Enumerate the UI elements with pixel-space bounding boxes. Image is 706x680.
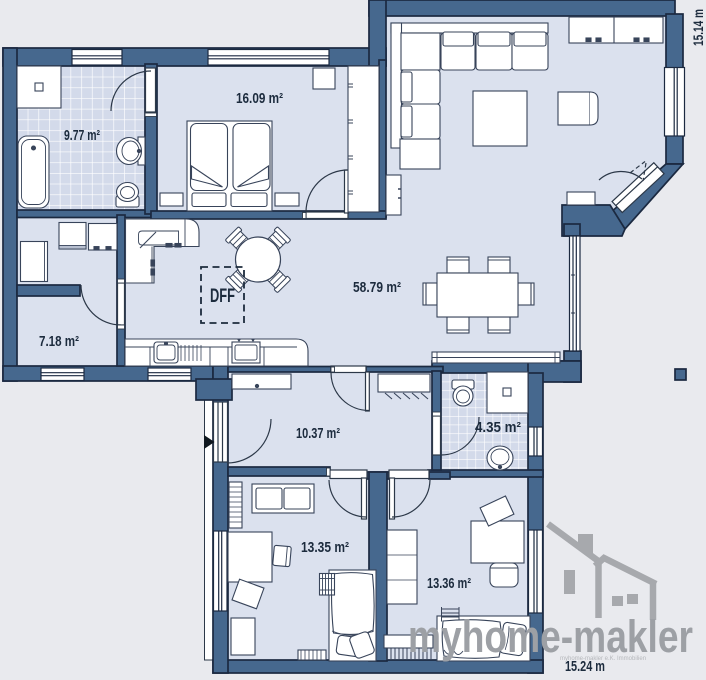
svg-text:9.77 m²: 9.77 m² <box>64 128 100 144</box>
svg-text:15.14 m: 15.14 m <box>691 9 706 46</box>
svg-text:4.35 m²: 4.35 m² <box>475 420 521 436</box>
svg-text:7.18 m²: 7.18 m² <box>39 334 79 350</box>
svg-text:13.35 m²: 13.35 m² <box>301 540 349 556</box>
svg-text:DFF: DFF <box>210 286 235 307</box>
svg-text:myhome-makler: myhome-makler <box>408 611 693 662</box>
svg-text:myhome-makler e.K. Immobilien: myhome-makler e.K. Immobilien <box>560 656 646 662</box>
svg-text:10.37 m²: 10.37 m² <box>296 426 340 442</box>
svg-text:16.09 m²: 16.09 m² <box>236 91 283 107</box>
svg-text:58.79 m²: 58.79 m² <box>353 280 401 296</box>
svg-text:13.36 m²: 13.36 m² <box>427 576 471 592</box>
